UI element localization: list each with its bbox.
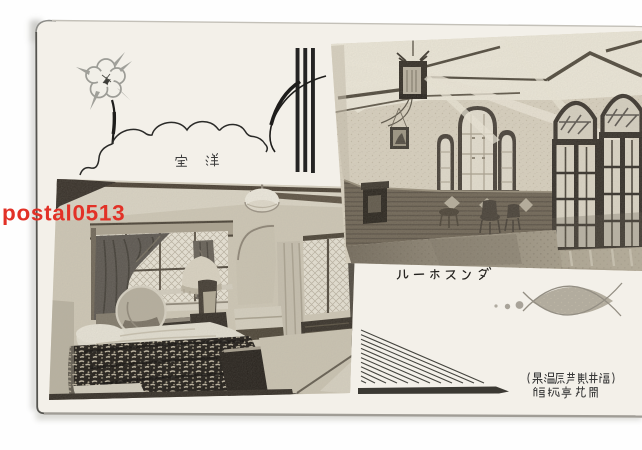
svg-text:postal0513: postal0513 (2, 200, 125, 225)
